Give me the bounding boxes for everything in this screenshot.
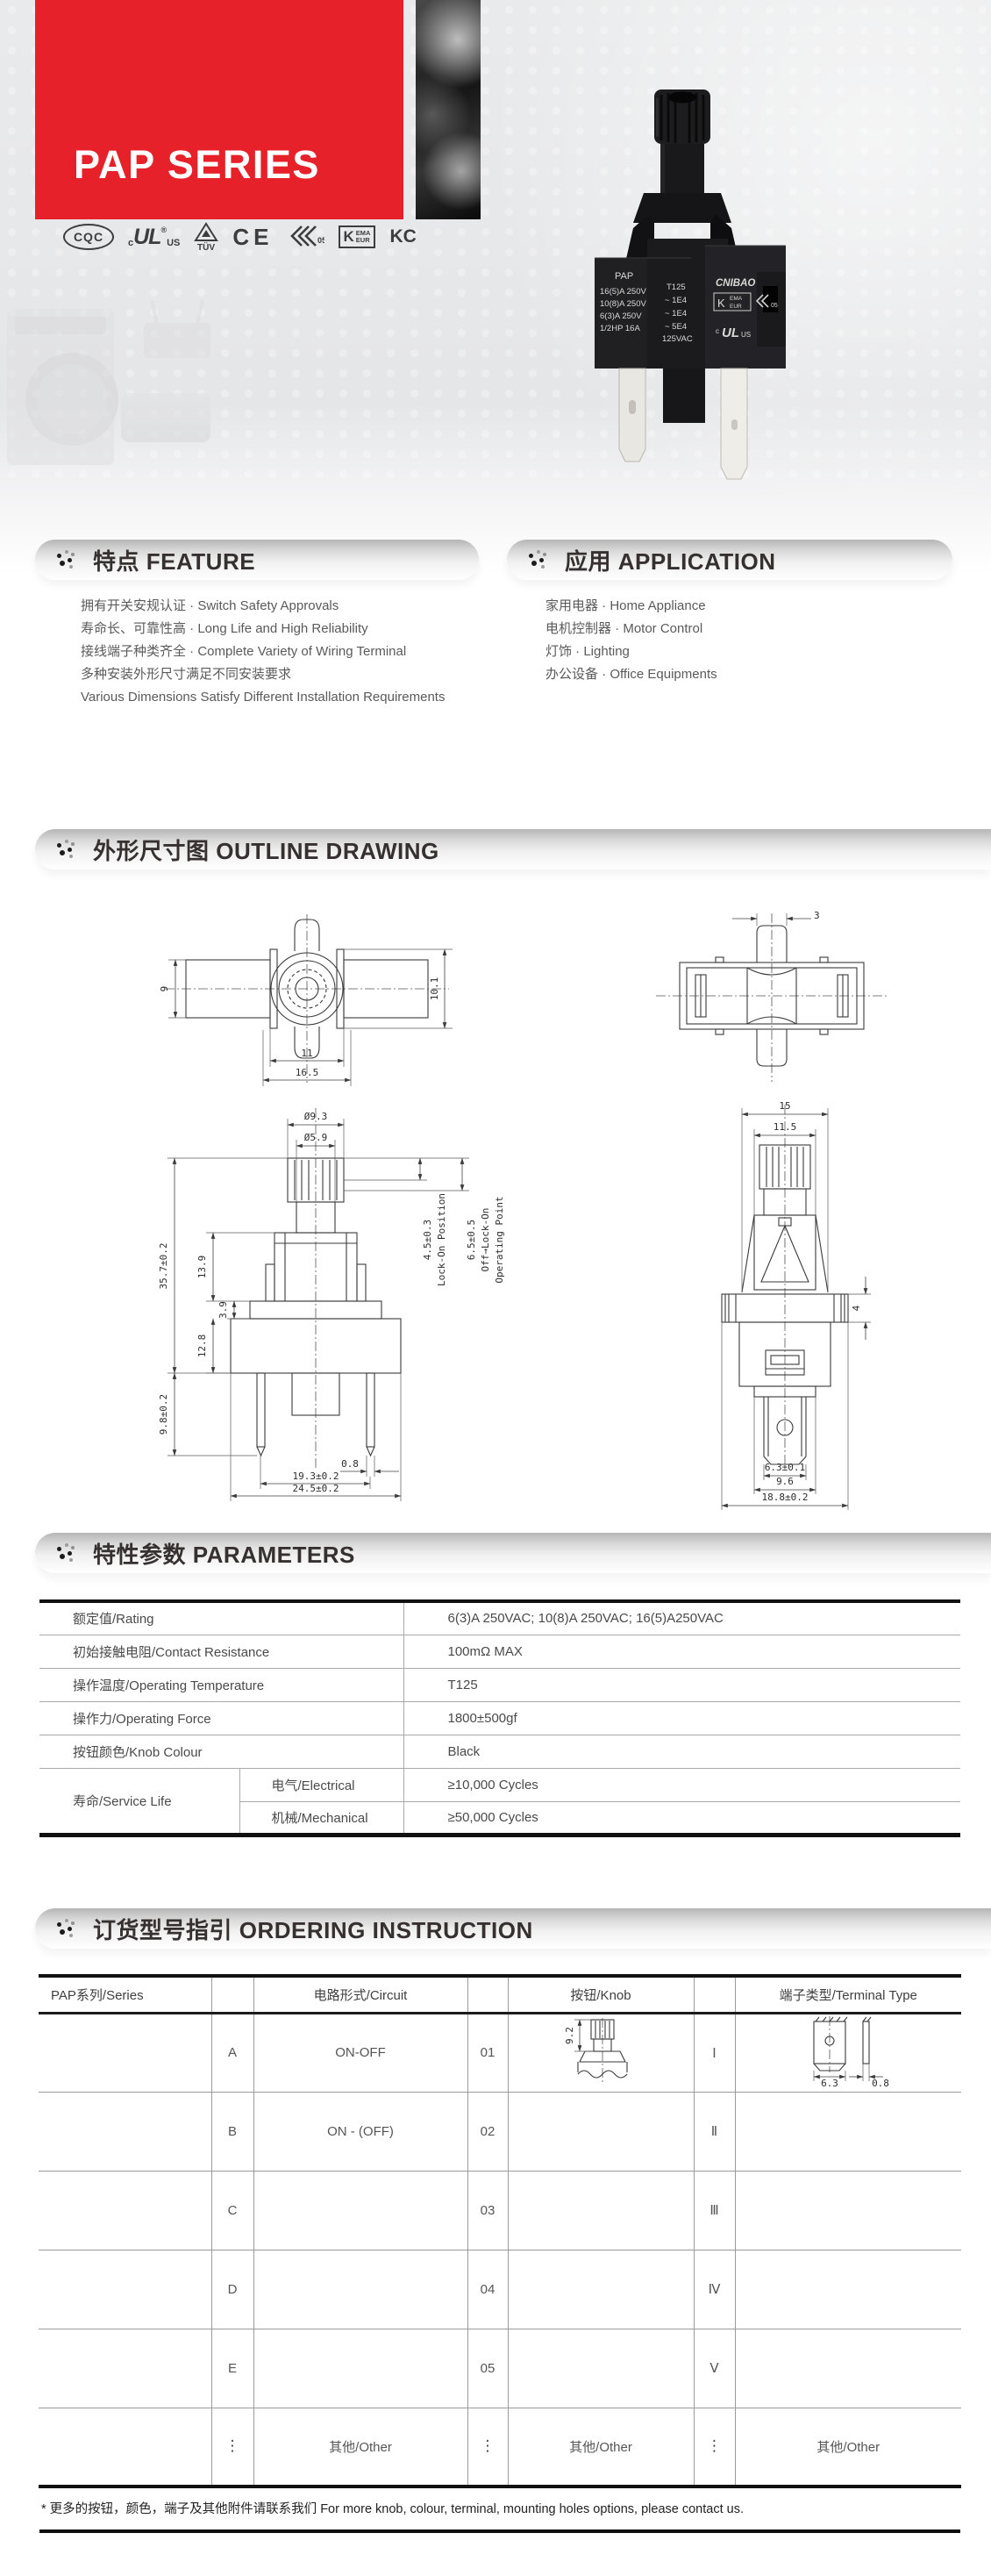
svg-text:10(8)A 250V: 10(8)A 250V: [600, 299, 646, 309]
certification-row: CQC cUL®US TÜV CE 05: [63, 219, 417, 254]
dimension-label: 9: [159, 986, 170, 992]
dimension-label: 9.6: [776, 1476, 794, 1487]
svg-text:~ 5E4: ~ 5E4: [665, 322, 687, 332]
application-list: 家用电器 · Home Appliance 电机控制器 · Motor Cont…: [545, 595, 717, 686]
ordering-title: 订货型号指引 ORDERING INSTRUCTION: [93, 1913, 533, 1945]
param-value: T125: [403, 1668, 960, 1701]
enec-logo-icon: 05: [288, 224, 324, 250]
dimension-label: 10.1: [429, 977, 440, 1001]
feature-item: 多种安装外形尺寸满足不同安装要求: [81, 663, 445, 686]
dimension-label: 9.2: [564, 2027, 575, 2044]
circuit-code: C: [211, 2171, 253, 2250]
dimension-label: 19.3±0.2: [293, 1470, 339, 1482]
knob-drawing-cell: 9.2: [508, 2013, 694, 2092]
circuit-type: [253, 2171, 467, 2250]
terminal-code: Ⅰ: [694, 2013, 735, 2092]
dimension-label: 4: [851, 1305, 862, 1311]
param-sub-label: 电气/Electrical: [239, 1768, 403, 1801]
dimension-label: 0.8: [872, 2078, 889, 2088]
footer-note: * 更多的按钮，颜色，端子及其他附件请联系我们 For more knob, c…: [39, 2488, 960, 2533]
circuit-type: [253, 2329, 467, 2408]
table-row: 寿命/Service Life 电气/Electrical ≥10,000 Cy…: [39, 1768, 960, 1801]
param-value: 100mΩ MAX: [403, 1635, 960, 1668]
terminal-drawing: 6.3 0.8: [782, 2014, 914, 2088]
ce-logo-icon: CE: [232, 224, 273, 251]
ordering-section-header: 订货型号指引 ORDERING INSTRUCTION: [35, 1908, 991, 1949]
knob-code: 02: [467, 2092, 508, 2171]
table-row: ⋮ 其他/Other ⋮ 其他/Other ⋮ 其他/Other: [39, 2408, 961, 2487]
param-value: 6(3)A 250VAC; 10(8)A 250VAC; 16(5)A250VA…: [403, 1601, 960, 1635]
svg-text:c: c: [716, 327, 719, 335]
svg-text:125VAC: 125VAC: [662, 334, 693, 344]
feature-item: 寿命长、可靠性高 · Long Life and High Reliabilit…: [81, 618, 445, 640]
table-row: 操作力/Operating Force 1800±500gf: [39, 1701, 960, 1735]
more-codes-ellipsis: ⋮: [467, 2408, 508, 2487]
dots-icon: [56, 839, 77, 860]
table-row: 操作温度/Operating Temperature T125: [39, 1668, 960, 1701]
dimension-label: Off→Lock-On: [480, 1208, 491, 1272]
feature-list: 拥有开关安规认证 · Switch Safety Approvals 寿命长、可…: [81, 595, 445, 709]
dimension-label: 13.9: [196, 1256, 208, 1279]
circuit-type: ON - (OFF): [253, 2092, 467, 2171]
terminal-code: Ⅲ: [694, 2171, 735, 2250]
param-value: 1800±500gf: [403, 1701, 960, 1735]
svg-text:05: 05: [771, 303, 778, 309]
param-label: 寿命/Service Life: [39, 1768, 239, 1835]
parameters-table: 额定值/Rating 6(3)A 250VAC; 10(8)A 250VAC; …: [39, 1599, 960, 1837]
dimension-label: 3.9: [217, 1301, 229, 1319]
terminal-code: Ⅱ: [694, 2092, 735, 2171]
dimension-label: 15: [779, 1100, 790, 1112]
param-sub-label: 机械/Mechanical: [239, 1801, 403, 1835]
svg-text:UL: UL: [722, 326, 739, 340]
svg-text:~ 1E4: ~ 1E4: [665, 309, 687, 318]
param-value: ≥50,000 Cycles: [403, 1801, 960, 1835]
terminal-drawing-cell: 6.3 0.8: [735, 2013, 961, 2092]
hero-banner: PAP SERIES CQC cUL®US TÜV CE: [0, 0, 991, 575]
svg-text:EUR: EUR: [730, 304, 742, 310]
parameters-title: 特性参数 PARAMETERS: [93, 1537, 355, 1570]
outline-drawing-bottom-view: 3: [614, 908, 930, 1088]
terminal-code: Ⅳ: [694, 2250, 735, 2329]
router-ghost-image: [144, 323, 210, 358]
svg-text:US: US: [741, 331, 751, 339]
cul-us-logo-icon: cUL®US: [128, 226, 180, 248]
svg-text:K: K: [717, 297, 725, 310]
param-label: 操作力/Operating Force: [39, 1701, 403, 1735]
ordering-table: PAP系列/Series 电路形式/Circuit 按钮/Knob 端子类型/T…: [39, 1974, 961, 2488]
circuit-code: E: [211, 2329, 253, 2408]
svg-text:05: 05: [317, 236, 324, 245]
table-header-row: PAP系列/Series 电路形式/Circuit 按钮/Knob 端子类型/T…: [39, 1976, 961, 2013]
kc-logo-icon: KC: [389, 226, 416, 247]
circuit-board-photo: [416, 0, 481, 219]
kema-keur-logo-icon: K EMAEUR: [339, 225, 376, 248]
svg-text:T125: T125: [667, 283, 686, 292]
table-row: E 05 Ⅴ: [39, 2329, 961, 2408]
dimension-label: 18.8±0.2: [762, 1492, 809, 1503]
knob-code: 01: [467, 2013, 508, 2092]
application-section-header: 应用 APPLICATION: [507, 540, 952, 580]
svg-text:TÜV: TÜV: [197, 241, 215, 252]
circuit-code: D: [211, 2250, 253, 2329]
param-label: 额定值/Rating: [39, 1601, 403, 1635]
application-item: 电机控制器 · Motor Control: [545, 618, 717, 640]
table-row: 额定值/Rating 6(3)A 250VAC; 10(8)A 250VAC; …: [39, 1601, 960, 1635]
dimension-label: 4.5±0.3: [422, 1220, 433, 1260]
table-row: C 03 Ⅲ: [39, 2171, 961, 2250]
dots-icon: [56, 549, 77, 570]
feature-item: Various Dimensions Satisfy Different Ins…: [81, 686, 445, 709]
col-header-terminal: 端子类型/Terminal Type: [735, 1976, 961, 2013]
dimension-label: 6.5±0.5: [466, 1220, 477, 1260]
outline-drawing-side-view: 15 11.5 4 6.3±0.1 9.6 18.8±0.2: [645, 1092, 925, 1513]
application-item: 灯饰 · Lighting: [545, 640, 717, 663]
more-codes-ellipsis: ⋮: [211, 2408, 253, 2487]
circuit-type: [253, 2250, 467, 2329]
knob-code: 03: [467, 2171, 508, 2250]
circuit-type: ON-OFF: [253, 2013, 467, 2092]
dimension-label: 0.8: [341, 1458, 359, 1470]
cqc-logo-icon: CQC: [63, 224, 114, 250]
circuit-type: 其他/Other: [253, 2408, 467, 2487]
product-photo: PAP 16(5)A 250V 10(8)A 250V 6(3)A 250V 1…: [533, 77, 835, 498]
table-row: 按钮颜色/Knob Colour Black: [39, 1735, 960, 1768]
svg-text:16(5)A 250V: 16(5)A 250V: [600, 287, 646, 297]
outline-section-header: 外形尺寸图 OUTLINE DRAWING: [35, 829, 991, 869]
svg-text:6(3)A 250V: 6(3)A 250V: [600, 311, 642, 321]
table-row: B ON - (OFF) 02 Ⅱ: [39, 2092, 961, 2171]
dimension-label: Operating Point: [494, 1196, 505, 1283]
param-value: Black: [403, 1735, 960, 1768]
dots-icon: [56, 1542, 77, 1563]
dimension-label: Ø5.9: [304, 1132, 328, 1143]
marking-model: PAP: [615, 271, 633, 282]
terminal-other: 其他/Other: [735, 2408, 961, 2487]
svg-text:EMA: EMA: [730, 296, 743, 302]
knob-code: 05: [467, 2329, 508, 2408]
dimension-label: 24.5±0.2: [293, 1483, 339, 1494]
dimension-label: 35.7±0.2: [158, 1243, 169, 1290]
dimension-label: 6.3±0.1: [765, 1462, 805, 1473]
dimension-label: 11.5: [774, 1121, 797, 1133]
table-row: A ON-OFF 01 9.2: [39, 2013, 961, 2092]
table-row: 初始接触电阻/Contact Resistance 100mΩ MAX: [39, 1635, 960, 1668]
col-header-circuit: 电路形式/Circuit: [253, 1976, 467, 2013]
knob-drawing: 9.2: [548, 2014, 653, 2088]
param-label: 按钮颜色/Knob Colour: [39, 1735, 403, 1768]
dimension-label: 11: [301, 1048, 312, 1059]
dimension-label: Ø9.3: [304, 1111, 328, 1122]
dimension-label: 12.8: [196, 1335, 208, 1358]
outline-drawing-front-view: Ø9.3 Ø5.9 35.7±0.2 13.9 3.9 12.8 9.8±0.2…: [118, 1092, 513, 1505]
col-header-series: PAP系列/Series: [39, 1976, 211, 2013]
dimension-label: 16.5: [296, 1067, 319, 1078]
more-codes-ellipsis: ⋮: [694, 2408, 735, 2487]
circuit-code: B: [211, 2092, 253, 2171]
dots-icon: [528, 549, 549, 570]
circuit-code: A: [211, 2013, 253, 2092]
terminal-code: Ⅴ: [694, 2329, 735, 2408]
feature-item: 接线端子种类齐全 · Complete Variety of Wiring Te…: [81, 640, 445, 663]
series-banner: PAP SERIES: [35, 0, 403, 219]
dimension-label: 6.3: [821, 2078, 838, 2088]
datasheet-page: PAP SERIES CQC cUL®US TÜV CE: [0, 0, 991, 2576]
col-header-knob: 按钮/Knob: [508, 1976, 694, 2013]
dimension-label: 3: [814, 910, 820, 921]
svg-text:~ 1E4: ~ 1E4: [665, 296, 687, 305]
washing-machine-ghost-image: [7, 309, 114, 465]
parameters-section-header: 特性参数 PARAMETERS: [35, 1533, 991, 1573]
knob-other: 其他/Other: [508, 2408, 694, 2487]
application-item: 家用电器 · Home Appliance: [545, 595, 717, 618]
tuv-logo-icon: TÜV: [194, 222, 218, 252]
svg-text:1/2HP 16A: 1/2HP 16A: [600, 324, 640, 333]
air-conditioner-ghost-image: [121, 393, 210, 442]
application-item: 办公设备 · Office Equipments: [545, 663, 717, 686]
param-label: 初始接触电阻/Contact Resistance: [39, 1635, 403, 1668]
param-label: 操作温度/Operating Temperature: [39, 1668, 403, 1701]
knob-code: 04: [467, 2250, 508, 2329]
outline-title: 外形尺寸图 OUTLINE DRAWING: [93, 834, 439, 866]
marking-brand: CNIBAO: [716, 278, 755, 289]
outline-drawing-top-view: 9 10.1 11 16.5: [132, 905, 482, 1090]
series-title: PAP SERIES: [74, 142, 320, 188]
feature-item: 拥有开关安规认证 · Switch Safety Approvals: [81, 595, 445, 618]
feature-title: 特点 FEATURE: [93, 544, 255, 576]
dimension-label: Lock-On Position: [436, 1193, 447, 1286]
dimension-label: 9.8±0.2: [158, 1394, 169, 1435]
feature-section-header: 特点 FEATURE: [35, 540, 479, 580]
table-row: D 04 Ⅳ: [39, 2250, 961, 2329]
param-value: ≥10,000 Cycles: [403, 1768, 960, 1801]
dots-icon: [56, 1918, 77, 1939]
application-title: 应用 APPLICATION: [565, 544, 776, 576]
